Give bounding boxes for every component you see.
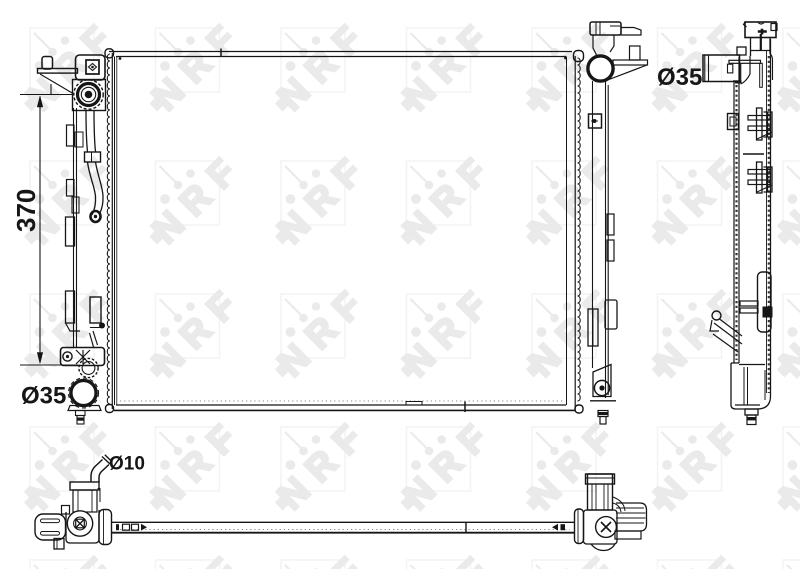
svg-text:Ø10: Ø10: [109, 454, 145, 475]
svg-text:370: 370: [11, 189, 41, 232]
svg-text:Ø35: Ø35: [657, 64, 702, 91]
svg-text:Ø35: Ø35: [21, 383, 66, 410]
